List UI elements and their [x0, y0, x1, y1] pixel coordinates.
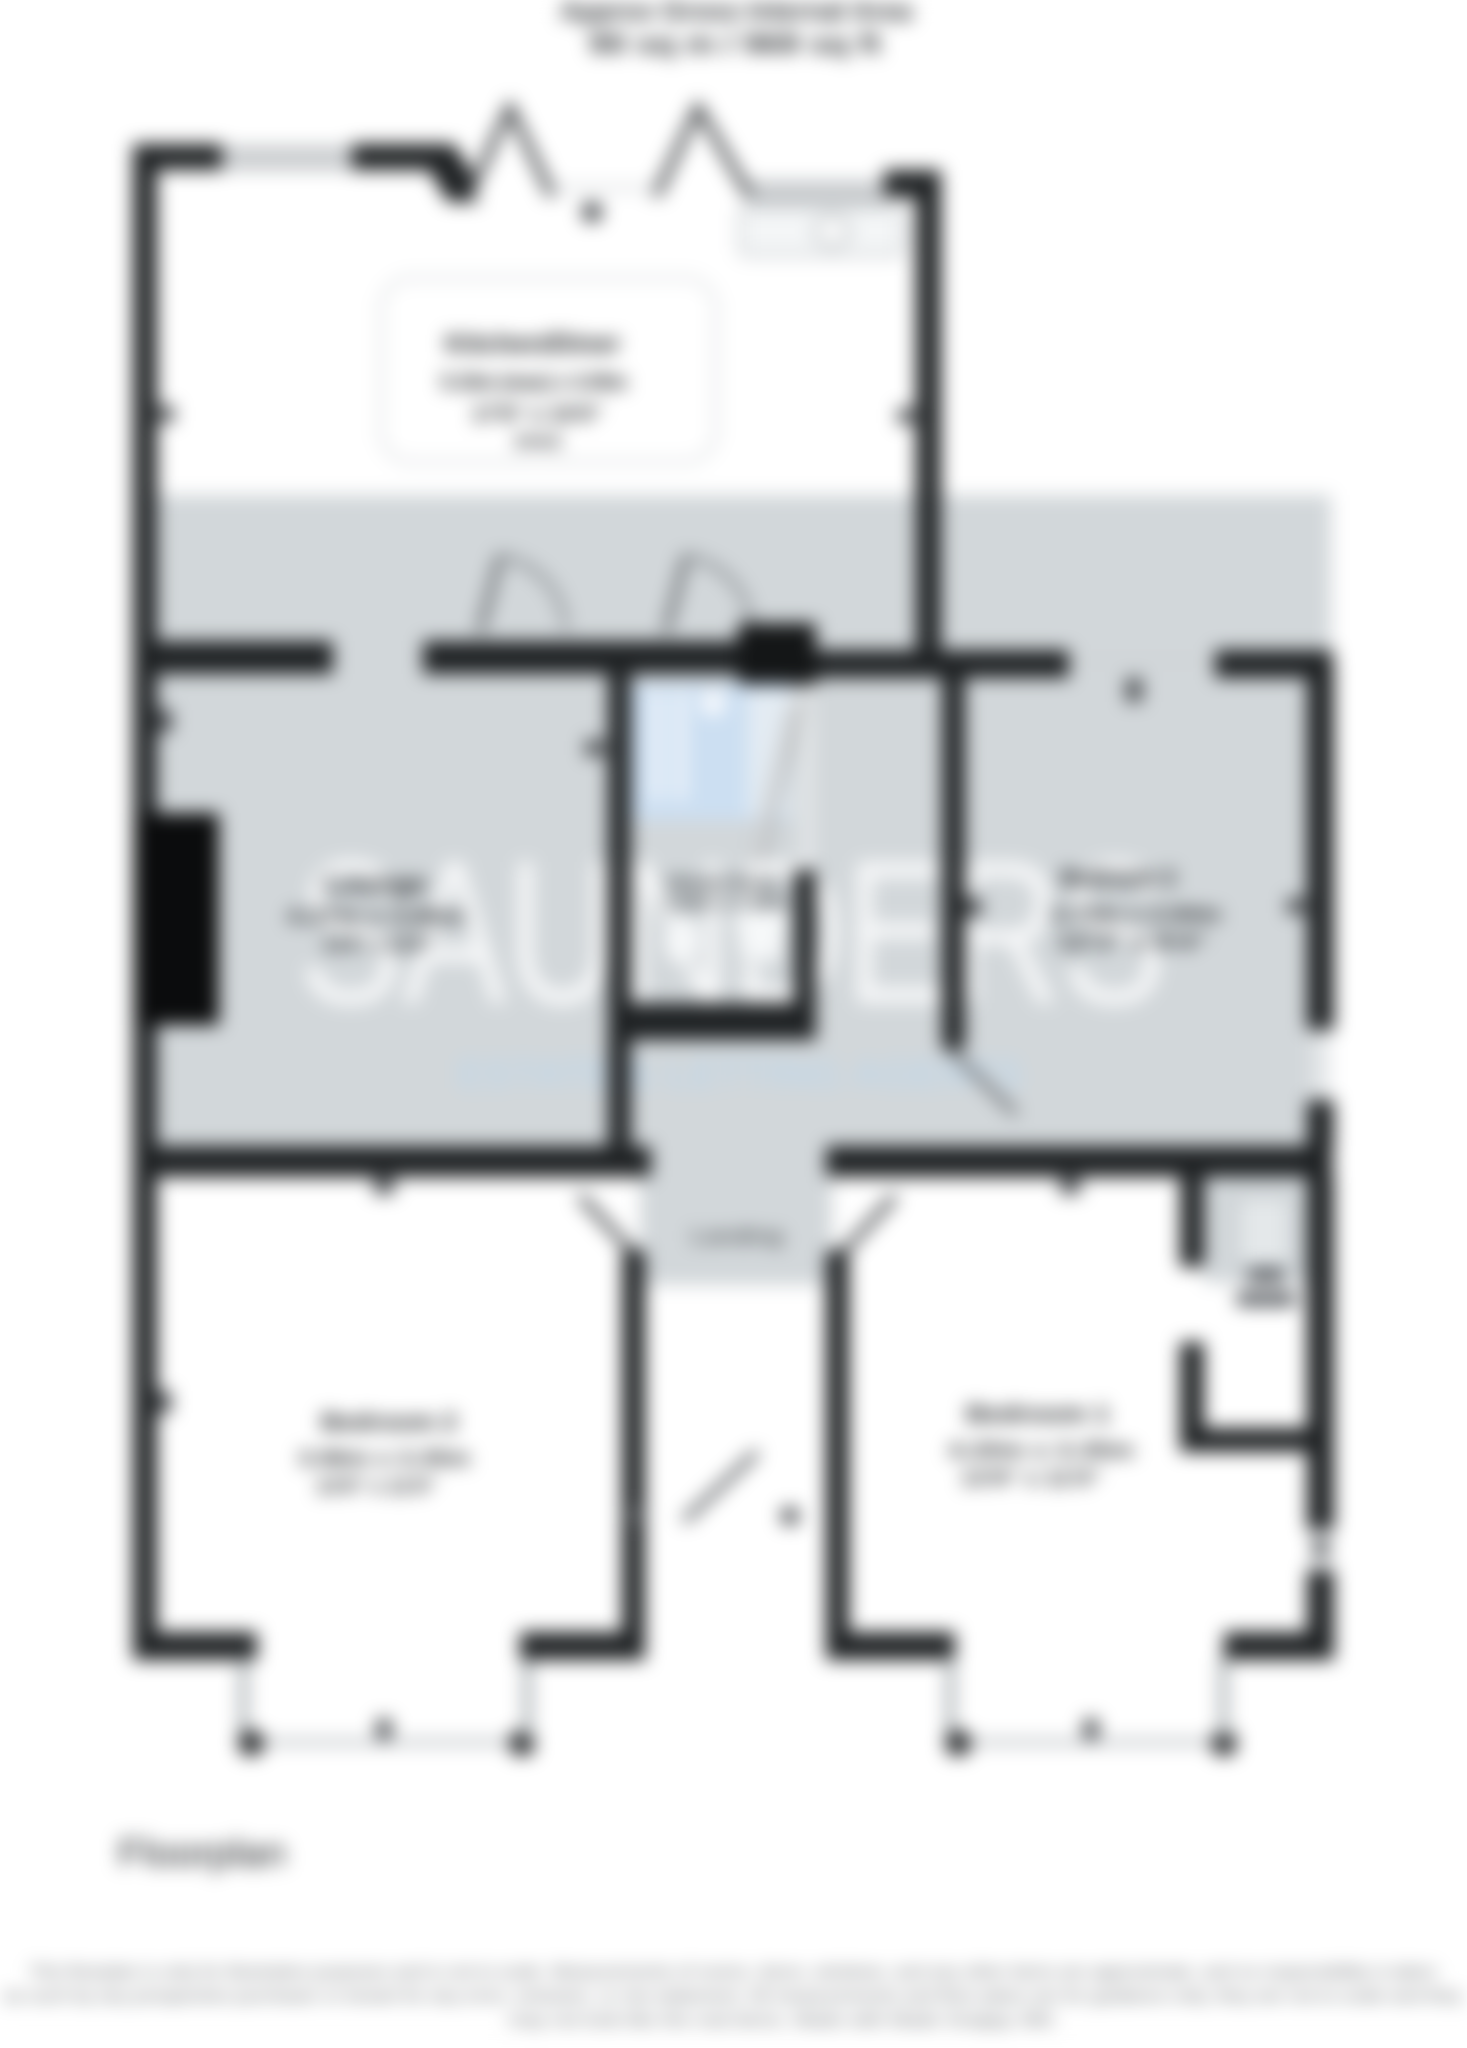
svg-text:17'6" x 10'0": 17'6" x 10'0" [472, 403, 602, 426]
svg-text:Bedroom 1: Bedroom 1 [966, 1401, 1110, 1428]
svg-text:Bedroom 3: Bedroom 3 [1061, 865, 1175, 892]
svg-text:This floorplan is only for ill: This floorplan is only for illustrative … [29, 1964, 1437, 1981]
svg-text:90 sq m / 969 sq ft: 90 sq m / 969 sq ft [589, 28, 881, 59]
svg-text:as such by any prospective pur: as such by any prospective purchaser or … [4, 1988, 1462, 2005]
svg-text:Lounge: Lounge [325, 871, 427, 898]
svg-text:ESTATE & LETTING AGENTS: ESTATE & LETTING AGENTS [457, 1050, 1023, 1097]
svg-text:13'0" x 11'0": 13'0" x 11'0" [316, 1476, 436, 1498]
svg-text:3.96m x 3.35m: 3.96m x 3.35m [298, 1448, 470, 1470]
svg-text:12'3" x 9'4": 12'3" x 9'4" [1057, 932, 1207, 954]
svg-text:3.73m x 2.84m: 3.73m x 2.84m [1051, 904, 1221, 926]
svg-text:Kitchen/Diner: Kitchen/Diner [446, 330, 621, 358]
svg-text:13'9" x 11'0": 13'9" x 11'0" [961, 1468, 1101, 1490]
svg-text:(max): (max) [515, 431, 560, 450]
svg-text:4.20m x 3.35m: 4.20m x 3.35m [948, 1440, 1134, 1462]
svg-text:4.27m x 3.66m: 4.27m x 3.66m [287, 906, 465, 928]
svg-text:14'0" x 12'0": 14'0" x 12'0" [323, 934, 433, 956]
svg-text:Bedroom 2: Bedroom 2 [321, 1409, 457, 1436]
svg-text:Floorplan: Floorplan [118, 1832, 286, 1875]
svg-text:5.33m (max) x 3.05m: 5.33m (max) x 3.05m [441, 371, 627, 394]
svg-text:Landing: Landing [691, 1226, 783, 1248]
svg-text:may not look like the real ite: may not look like the real items. Made w… [508, 2012, 1058, 2029]
svg-text:Approx Gross Internal Area: Approx Gross Internal Area [560, 0, 912, 26]
svg-text:Shower Room: Shower Room [667, 875, 779, 892]
